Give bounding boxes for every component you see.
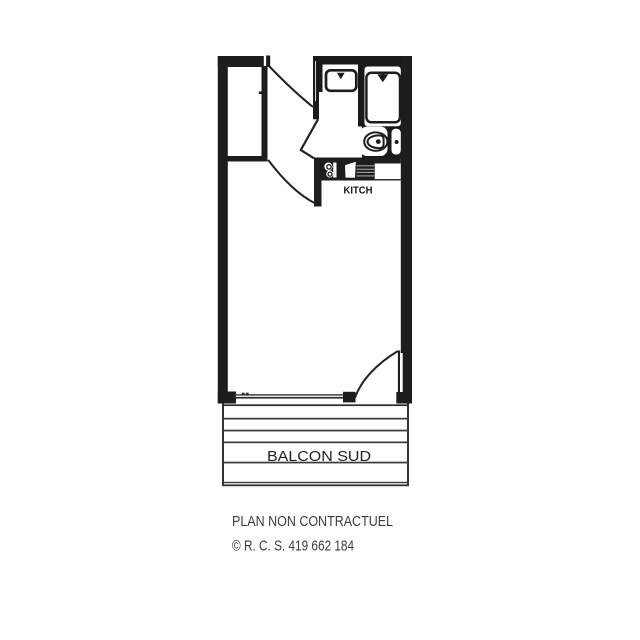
svg-text:© R. C. S. 419 662 184: © R. C. S. 419 662 184 bbox=[232, 538, 354, 555]
svg-text:BALCON SUD: BALCON SUD bbox=[267, 449, 371, 465]
svg-text:PLAN NON CONTRACTUEL: PLAN NON CONTRACTUEL bbox=[232, 513, 393, 530]
svg-text:KITCH: KITCH bbox=[344, 185, 373, 197]
